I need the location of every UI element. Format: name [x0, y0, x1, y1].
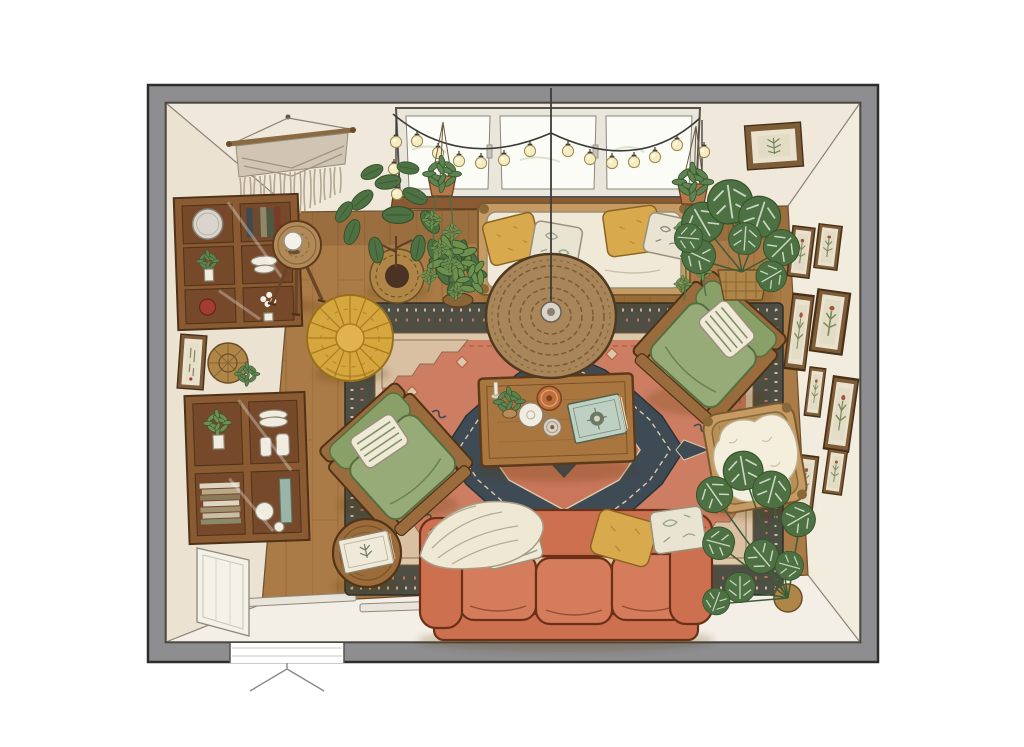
small-frame-left-wall	[177, 334, 207, 390]
framed-print-top-wall	[745, 122, 804, 170]
red-vase	[199, 299, 216, 316]
small-bowl	[543, 418, 562, 437]
orange-tray	[537, 386, 562, 411]
coffee-table	[479, 373, 636, 466]
wall-panel	[197, 548, 249, 636]
room-illustration	[0, 0, 1024, 747]
floor-plan-canvas	[0, 0, 1024, 747]
sofa-pillow-floral	[649, 506, 706, 555]
shelf-teal-book	[279, 478, 292, 522]
side-table-with-books	[333, 519, 401, 587]
table-lamp-globe	[284, 232, 302, 250]
sofa-seat-cushion	[536, 558, 612, 624]
moroccan-pouf	[307, 295, 393, 381]
wall-shelf-lower	[184, 392, 309, 544]
window-handle	[487, 145, 492, 158]
